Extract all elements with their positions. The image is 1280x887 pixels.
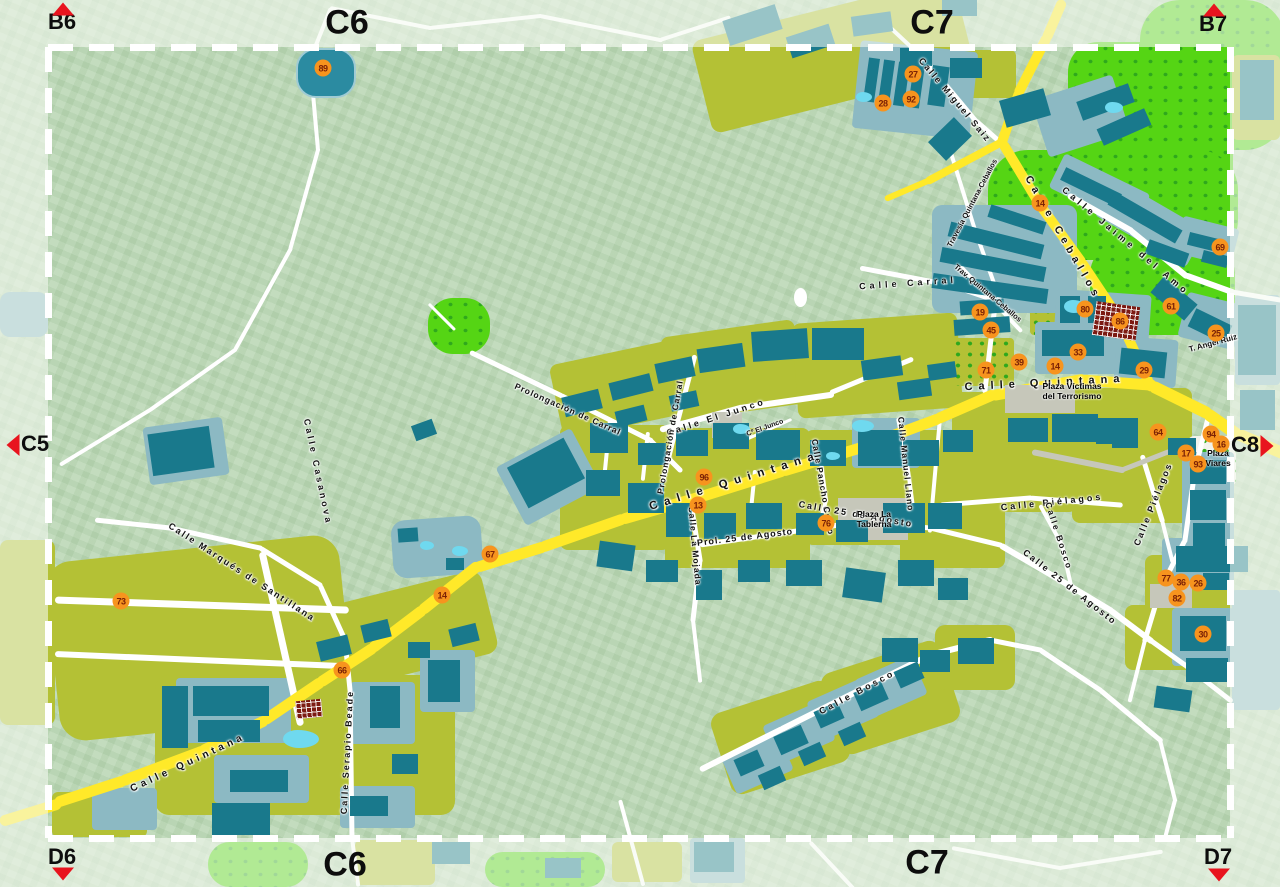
building (411, 419, 437, 442)
grid-ref-c5[interactable]: C5 (21, 431, 49, 457)
building (746, 503, 782, 529)
grid-ref-c6[interactable]: C6 (325, 4, 368, 43)
poi-marker-14[interactable]: 14 (1032, 195, 1049, 212)
street-road (288, 147, 320, 250)
main-road (884, 177, 932, 202)
building (162, 686, 188, 748)
building (920, 650, 950, 672)
poi-marker-29[interactable]: 29 (1136, 362, 1153, 379)
poi-marker-45[interactable]: 45 (983, 322, 1000, 339)
margin-fade (0, 0, 1280, 47)
building (1052, 414, 1098, 442)
building (786, 560, 822, 586)
building (958, 638, 994, 664)
building (446, 558, 464, 570)
poi-marker-13[interactable]: 13 (690, 497, 707, 514)
poi-marker-16[interactable]: 16 (1213, 436, 1230, 453)
building (1193, 523, 1225, 547)
poi-marker-30[interactable]: 30 (1195, 626, 1212, 643)
poi-marker-92[interactable]: 92 (903, 91, 920, 108)
building (392, 754, 418, 774)
building (1186, 658, 1228, 682)
street-road (59, 407, 153, 467)
poi-marker-73[interactable]: 73 (113, 593, 130, 610)
building (1154, 686, 1193, 713)
building (858, 430, 902, 466)
street-road (149, 347, 238, 412)
street-road (95, 518, 174, 531)
nav-arrow-up-b7[interactable] (1203, 4, 1225, 17)
park-area (428, 298, 490, 354)
building (646, 560, 678, 582)
poi-marker-93[interactable]: 93 (1190, 456, 1207, 473)
nav-arrow-right-c8[interactable] (1261, 435, 1274, 457)
building (898, 560, 934, 586)
building (212, 803, 270, 835)
grid-ref-d6[interactable]: D6 (48, 844, 76, 870)
building (398, 527, 419, 542)
poi-marker-28[interactable]: 28 (875, 95, 892, 112)
building (230, 770, 288, 792)
building (842, 567, 886, 602)
building (193, 686, 269, 716)
building (882, 638, 918, 662)
grid-ref-c6[interactable]: C6 (323, 846, 366, 885)
building (751, 328, 809, 362)
building (350, 796, 388, 816)
frame-dash (48, 44, 1230, 51)
plaza-label: Plaza La Tablerna (857, 510, 892, 530)
building (812, 328, 864, 360)
frame-dash (48, 835, 1230, 842)
nav-arrow-down-d7[interactable] (1208, 869, 1230, 882)
grid-ref-c8[interactable]: C8 (1231, 432, 1259, 458)
nav-arrow-down-d6[interactable] (52, 868, 74, 881)
building (1112, 428, 1138, 448)
building-parcel (92, 788, 157, 830)
poi-marker-96[interactable]: 96 (696, 469, 713, 486)
building (586, 470, 620, 496)
building (596, 541, 635, 572)
poi-marker-39[interactable]: 39 (1011, 354, 1028, 371)
street-road (691, 620, 702, 683)
poi-marker-26[interactable]: 26 (1190, 575, 1207, 592)
nav-arrow-left-c5[interactable] (7, 434, 20, 456)
building (928, 503, 962, 529)
poi-marker-86[interactable]: 86 (1112, 313, 1129, 330)
poi-marker-71[interactable]: 71 (978, 362, 995, 379)
building (943, 430, 973, 452)
poi-marker-69[interactable]: 69 (1212, 239, 1229, 256)
building (1008, 418, 1048, 442)
poi-marker-61[interactable]: 61 (1163, 298, 1180, 315)
building (756, 430, 800, 460)
poi-marker-25[interactable]: 25 (1208, 325, 1225, 342)
landmark-building (295, 699, 323, 720)
street-label: Calle Casanova (302, 418, 334, 526)
poi-marker-19[interactable]: 19 (972, 304, 989, 321)
poi-marker-89[interactable]: 89 (315, 60, 332, 77)
building (1190, 490, 1226, 520)
poi-marker-36[interactable]: 36 (1173, 574, 1190, 591)
grid-ref-c7[interactable]: C7 (910, 4, 953, 43)
street-road (1158, 740, 1177, 803)
grid-ref-d7[interactable]: D7 (1204, 844, 1232, 870)
building (408, 642, 430, 658)
street-road (233, 247, 293, 351)
poi-marker-64[interactable]: 64 (1150, 424, 1167, 441)
plaza-label: Plaza Víctimas del Terrorismo (1042, 382, 1101, 402)
building (950, 58, 982, 78)
poi-marker-33[interactable]: 33 (1070, 344, 1087, 361)
building (428, 660, 460, 702)
building (147, 426, 214, 476)
map-page: Calle Miguel SaizCalle CeballosCalle Jai… (0, 0, 1280, 887)
building (676, 430, 708, 456)
poi-marker-67[interactable]: 67 (482, 546, 499, 563)
building (938, 578, 968, 600)
pool-white (794, 288, 807, 307)
poi-marker-14[interactable]: 14 (434, 587, 451, 604)
poi-marker-80[interactable]: 80 (1077, 301, 1094, 318)
street-road (1039, 648, 1104, 694)
poi-marker-82[interactable]: 82 (1169, 590, 1186, 607)
poi-marker-66[interactable]: 66 (334, 662, 351, 679)
building (738, 560, 770, 582)
building (1203, 573, 1229, 590)
poi-marker-27[interactable]: 27 (905, 66, 922, 83)
poi-marker-14[interactable]: 14 (1047, 358, 1064, 375)
building (370, 686, 400, 728)
margin-fade (0, 838, 1280, 887)
nav-arrow-up-b6[interactable] (52, 3, 74, 16)
poi-marker-76[interactable]: 76 (818, 515, 835, 532)
grid-ref-c7[interactable]: C7 (905, 844, 948, 883)
